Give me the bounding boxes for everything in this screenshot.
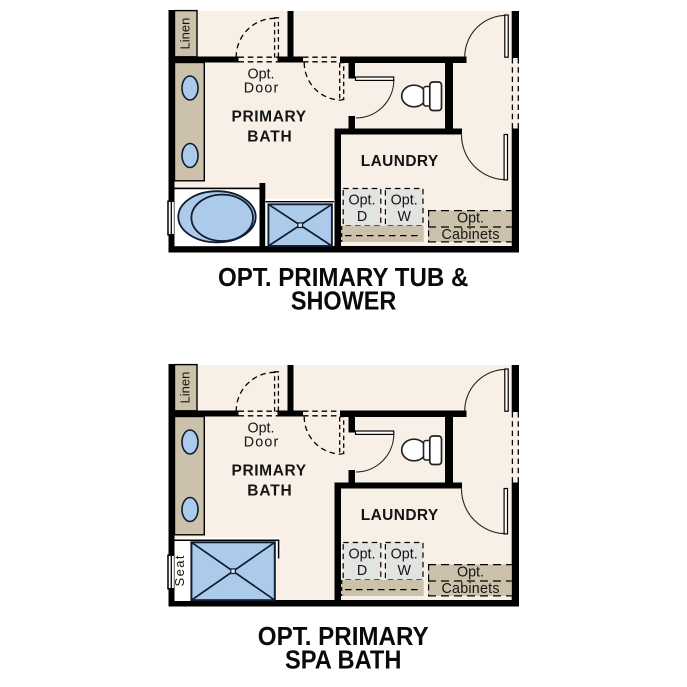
svg-text:Linen: Linen: [178, 372, 193, 404]
svg-text:Cabinets: Cabinets: [442, 581, 500, 597]
svg-text:Opt.: Opt.: [348, 547, 375, 563]
svg-text:Opt.: Opt.: [348, 193, 375, 209]
svg-text:Door: Door: [244, 435, 279, 451]
svg-text:LAUNDRY: LAUNDRY: [361, 507, 439, 524]
svg-text:D: D: [357, 563, 367, 579]
svg-text:Opt.: Opt.: [391, 193, 418, 209]
svg-text:PRIMARY: PRIMARY: [232, 109, 307, 126]
svg-text:Seat: Seat: [172, 555, 187, 586]
svg-text:Cabinets: Cabinets: [442, 227, 500, 243]
svg-text:SPA BATH: SPA BATH: [285, 645, 402, 675]
svg-text:W: W: [397, 209, 411, 225]
svg-text:BATH: BATH: [247, 482, 292, 499]
svg-text:D: D: [357, 209, 367, 225]
svg-text:Linen: Linen: [178, 18, 193, 50]
svg-text:Opt.: Opt.: [457, 564, 484, 580]
svg-text:LAUNDRY: LAUNDRY: [361, 153, 439, 170]
svg-text:SHOWER: SHOWER: [291, 286, 397, 316]
svg-text:Door: Door: [244, 81, 279, 97]
svg-text:Opt.: Opt.: [391, 547, 418, 563]
svg-text:W: W: [397, 563, 411, 579]
svg-text:PRIMARY: PRIMARY: [232, 463, 307, 480]
svg-text:BATH: BATH: [247, 128, 292, 145]
svg-text:Opt.: Opt.: [457, 210, 484, 226]
